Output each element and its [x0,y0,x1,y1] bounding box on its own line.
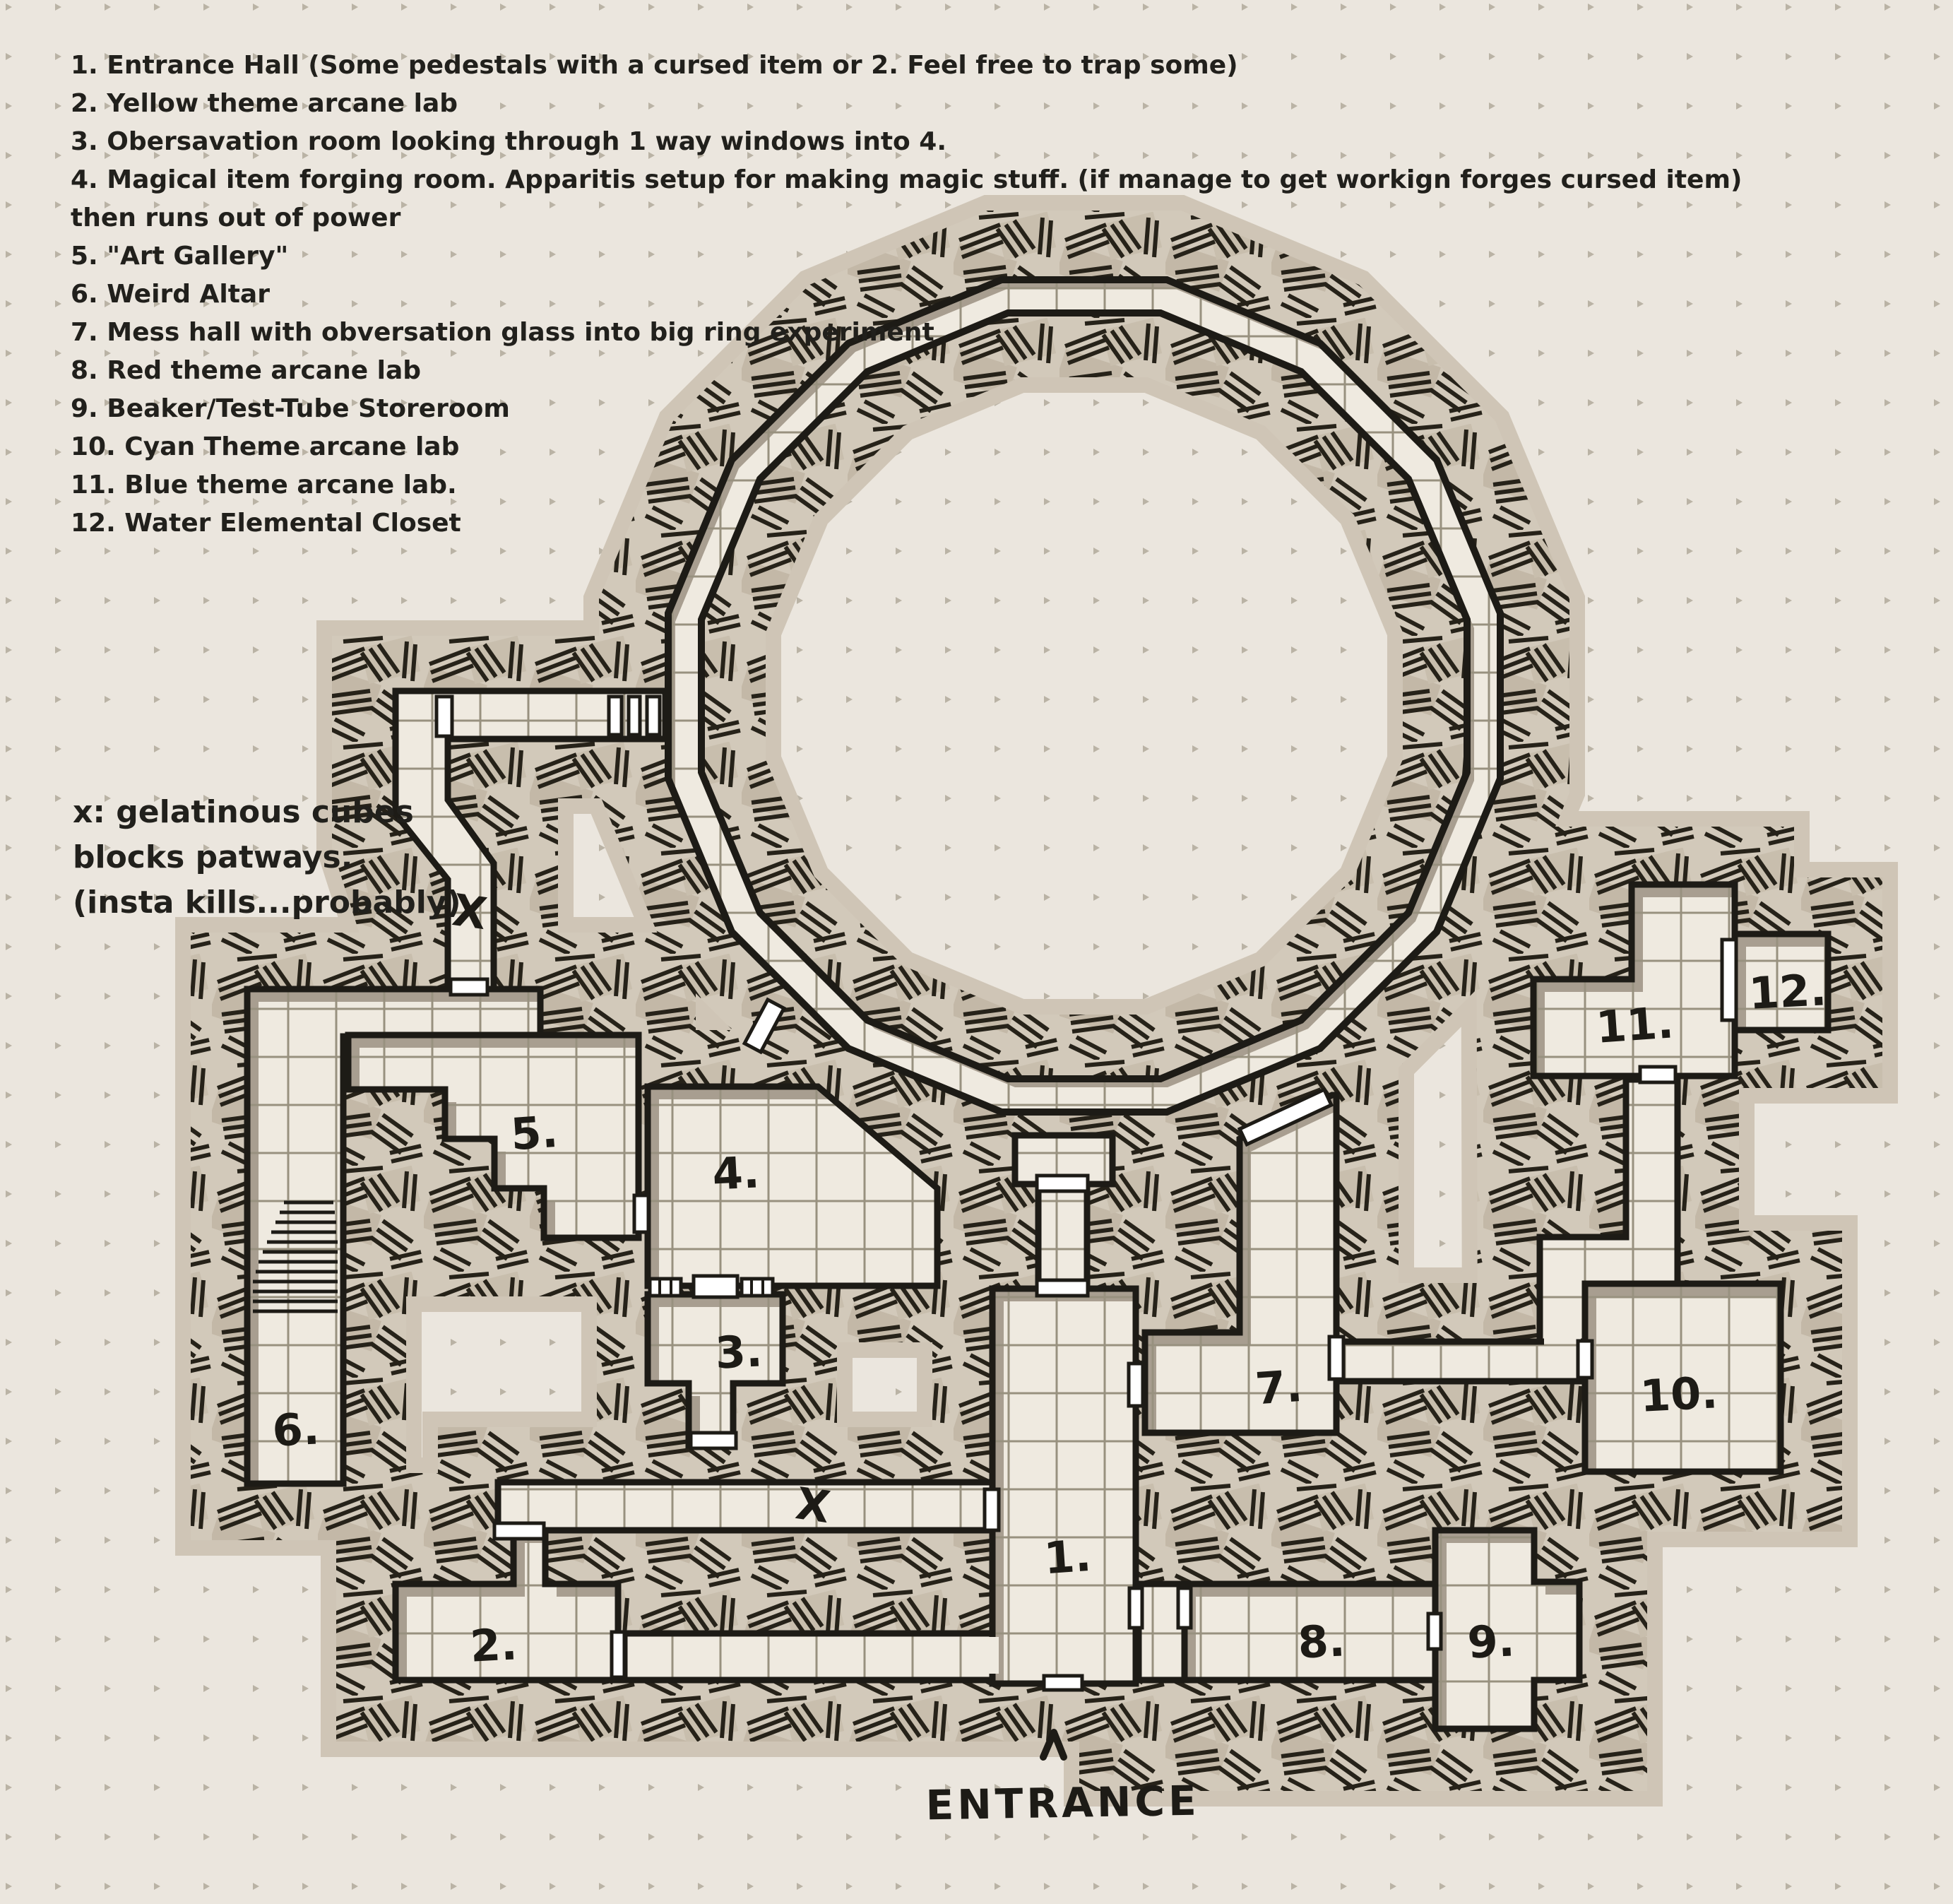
room-label-5: 5. [509,1106,560,1160]
door-5-to-4 [634,1195,648,1232]
note-line-1: x: gelatinous cubes [73,790,461,835]
door-11-to-12 [1722,940,1736,1020]
room-label-7: 7. [1254,1360,1305,1414]
door-1-to-7 [1129,1364,1143,1406]
room-1-floor [992,1289,1147,1696]
room-label-1: 1. [1043,1530,1093,1584]
room-label-2: 2. [469,1618,518,1672]
legend-line-1: 1. Entrance Hall (Some pedestals with a … [71,47,1742,85]
door-ring-to-1 [1037,1280,1088,1296]
room-label-6: 6. [271,1402,321,1456]
window-ring-3 [647,697,660,735]
legend-line-4: 4. Magical item forging room. Apparitis … [71,161,1742,199]
legend-line-5: then runs out of power [71,199,1742,237]
door-4-to-3 [694,1276,737,1297]
door-8-to-9 [1428,1614,1441,1649]
window-ring-2 [629,697,640,735]
corridor-x-floor [498,1482,992,1530]
door-antechamber [1037,1176,1088,1191]
door-corridor-to-6 [451,979,487,995]
room-label-4: 4. [711,1146,761,1200]
legend-line-11: 10. Cyan Theme arcane lab [71,428,1742,466]
room-label-11: 11. [1594,996,1675,1053]
door-topleft-corridor [437,697,452,736]
room-label-3: 3. [714,1325,764,1378]
legend-line-13: 12. Water Elemental Closet [71,504,1742,543]
door-10-west [1578,1341,1592,1378]
door-2-stub [494,1523,544,1539]
entrance-label: ENTRANCE [925,1777,1200,1830]
door-11-south [1640,1067,1675,1082]
legend: 1. Entrance Hall (Some pedestals with a … [71,47,1742,543]
legend-line-10: 9. Beaker/Test-Tube Storeroom [71,390,1742,428]
door-2-east [612,1632,624,1677]
cube-note: x: gelatinous cubes blocks patways. (ins… [73,790,461,926]
window-4-3-right [742,1279,773,1296]
door-1-west [985,1489,999,1530]
note-line-3: (insta kills...probably) [73,880,461,926]
corridor-bottom-floor [624,1633,992,1680]
room-label-9: 9. [1466,1614,1516,1668]
door-3-south [691,1433,736,1448]
room-label-12: 12. [1747,964,1828,1019]
window-4-3-left [650,1279,681,1296]
x-mark-2: X [793,1477,833,1533]
legend-line-7: 6. Weird Altar [71,276,1742,314]
legend-line-12: 11. Blue theme arcane lab. [71,466,1742,504]
door-stub-to-8 [1178,1588,1191,1628]
legend-line-9: 8. Red theme arcane lab [71,352,1742,390]
legend-line-8: 7. Mess hall with obversation glass into… [71,314,1742,352]
room-label-8: 8. [1297,1614,1346,1668]
door-7-east [1329,1337,1343,1379]
door-entrance [1044,1676,1082,1690]
note-line-2: blocks patways. [73,835,461,880]
legend-line-3: 3. Obersavation room looking through 1 w… [71,123,1742,161]
legend-line-2: 2. Yellow theme arcane lab [71,85,1742,123]
door-1-to-stub [1129,1588,1142,1628]
window-ring-1 [609,697,622,735]
room-label-10: 10. [1639,1366,1719,1422]
dungeon-map-page: { "legend": { "items": [ "1. Entrance Ha… [0,0,1953,1904]
legend-line-6: 5. "Art Gallery" [71,237,1742,276]
